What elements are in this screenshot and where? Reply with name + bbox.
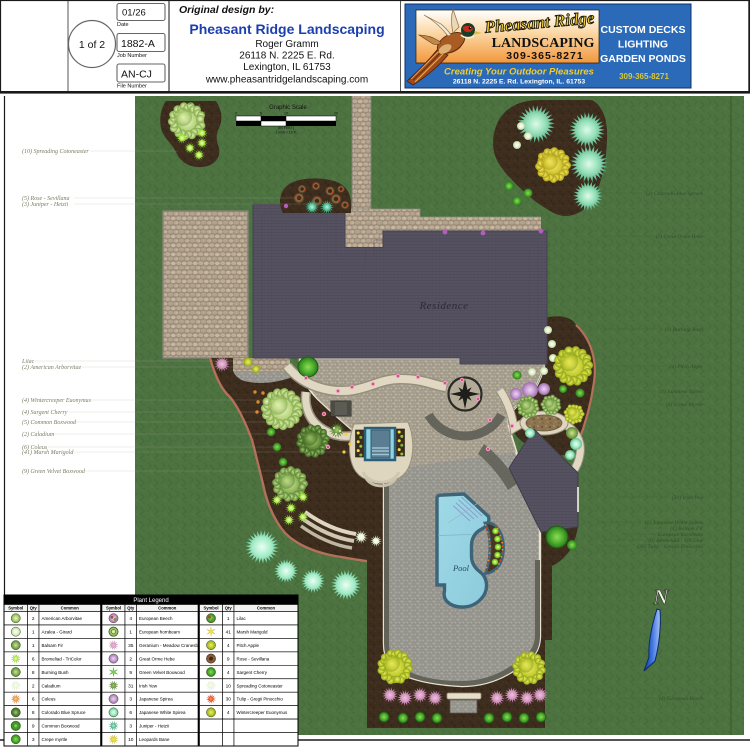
svg-text:Spreading Cotoneaster: Spreading Cotoneaster — [237, 683, 284, 688]
svg-text:30: 30 — [226, 697, 232, 703]
svg-text:4: 4 — [227, 710, 230, 716]
svg-text:Plant Legend: Plant Legend — [133, 598, 168, 604]
svg-text:2: 2 — [32, 616, 35, 622]
svg-text:1882-A: 1882-A — [121, 38, 155, 50]
svg-text:(2) Caladium: (2) Caladium — [22, 431, 55, 438]
svg-text:Great Orme Hebe: Great Orme Hebe — [139, 656, 175, 661]
svg-text:Green Velvet Boxwood: Green Velvet Boxwood — [139, 670, 185, 675]
svg-text:(6) Japanese White Spirea: (6) Japanese White Spirea — [645, 519, 703, 526]
svg-text:10: 10 — [226, 683, 232, 689]
svg-text:8: 8 — [32, 670, 35, 676]
svg-text:Symbol: Symbol — [8, 606, 23, 611]
svg-text:*: * — [189, 102, 192, 109]
svg-text:Common Boxwood: Common Boxwood — [42, 724, 81, 729]
svg-text:4: 4 — [227, 643, 230, 649]
svg-text:European Beech: European Beech — [139, 616, 173, 621]
svg-text:10: 10 — [128, 737, 134, 743]
svg-text:Crepe myrtle: Crepe myrtle — [42, 737, 68, 742]
svg-text:(5) Rose - Sevillana: (5) Rose - Sevillana — [22, 195, 69, 202]
svg-text:Symbol: Symbol — [203, 606, 218, 611]
svg-text:(4) Pitch Apple: (4) Pitch Apple — [670, 363, 704, 370]
svg-text:N: N — [652, 585, 669, 609]
svg-text:LANDSCAPING: LANDSCAPING — [492, 36, 595, 51]
svg-text:(31) Irish Yew: (31) Irish Yew — [672, 494, 703, 501]
svg-text:Tulip - Gregii Pinocchio: Tulip - Gregii Pinocchio — [237, 697, 284, 702]
svg-text:*: * — [198, 104, 201, 111]
svg-text:Sargent Cherry: Sargent Cherry — [237, 670, 268, 675]
svg-text:Qty: Qty — [30, 606, 38, 611]
svg-text:Common: Common — [158, 606, 177, 611]
svg-text:Job Number: Job Number — [117, 53, 147, 59]
svg-text:2: 2 — [129, 656, 132, 662]
svg-text:(9) Green Velvet Boxwood: (9) Green Velvet Boxwood — [22, 468, 86, 475]
svg-text:Creating Your Outdoor Pleasure: Creating Your Outdoor Pleasures — [444, 67, 594, 78]
svg-text:Leopards Bane: Leopards Bane — [139, 737, 170, 742]
svg-text:20: 20 — [334, 112, 338, 116]
svg-text:01/26: 01/26 — [122, 8, 146, 19]
svg-text:American Arborvitae: American Arborvitae — [42, 616, 83, 621]
svg-text:309-365-8271: 309-365-8271 — [506, 50, 583, 62]
svg-text:35: 35 — [128, 643, 134, 649]
svg-text:1: 1 — [129, 630, 132, 636]
svg-text:26118 N. 2225 E. Rd. Lexingt: 26118 N. 2225 E. Rd. Lexington, IL. 6175… — [453, 79, 585, 86]
svg-text:3: 3 — [129, 724, 132, 730]
svg-text:5: 5 — [260, 112, 262, 116]
svg-text:Burning Bush: Burning Bush — [42, 670, 70, 675]
svg-text:(3) Japanese Spirea: (3) Japanese Spirea — [659, 388, 703, 395]
svg-text:Balsam Fir: Balsam Fir — [42, 643, 64, 648]
svg-text:(41) Marsh Marigold: (41) Marsh Marigold — [22, 449, 74, 456]
svg-text:File Number: File Number — [117, 84, 147, 90]
svg-text:CUSTOM DECKS: CUSTOM DECKS — [601, 24, 686, 36]
svg-text:Common: Common — [257, 606, 276, 611]
svg-text:(30) Tulip - Greigii Pinocchio: (30) Tulip - Greigii Pinocchio — [637, 543, 703, 550]
svg-text:(4) Wintercreeper Euonymus: (4) Wintercreeper Euonymus — [22, 397, 92, 404]
svg-text:1: 1 — [227, 616, 230, 622]
svg-text:(5) Common Boxwood: (5) Common Boxwood — [22, 419, 77, 426]
svg-text:AN-CJ: AN-CJ — [121, 69, 152, 81]
svg-text:Qty: Qty — [127, 606, 135, 611]
svg-text:9: 9 — [32, 724, 35, 730]
svg-text:Coleus: Coleus — [42, 697, 57, 702]
svg-text:GARDEN PONDS: GARDEN PONDS — [600, 53, 686, 65]
svg-text:(4) European Beech: (4) European Beech — [659, 695, 703, 702]
svg-text:Symbol: Symbol — [106, 606, 121, 611]
svg-text:Irish Yew: Irish Yew — [139, 683, 158, 688]
svg-text:4: 4 — [129, 616, 132, 622]
svg-text:31: 31 — [128, 683, 134, 689]
svg-text:Rose - Sevillana: Rose - Sevillana — [237, 656, 270, 661]
svg-text:Geranium - Meadow Cranesbill: Geranium - Meadow Cranesbill — [139, 643, 201, 648]
svg-text:1 inch = 10 ft.: 1 inch = 10 ft. — [275, 131, 296, 135]
svg-text:Juniper - Hetzii: Juniper - Hetzii — [139, 724, 169, 729]
svg-text:9: 9 — [227, 656, 230, 662]
svg-text:Bromeliad - TriColor: Bromeliad - TriColor — [42, 656, 83, 661]
svg-text:9: 9 — [129, 670, 132, 676]
svg-text:26118 N. 2225 E. Rd.: 26118 N. 2225 E. Rd. — [239, 51, 334, 62]
svg-text:Common: Common — [61, 606, 80, 611]
svg-text:Pool: Pool — [452, 563, 470, 573]
svg-text:Japanese Spirea: Japanese Spirea — [139, 697, 173, 702]
svg-text:0: 0 — [235, 112, 237, 116]
svg-text:1: 1 — [32, 630, 35, 636]
svg-text:(2) Great Orme Hebe: (2) Great Orme Hebe — [656, 233, 704, 240]
svg-text:4: 4 — [227, 670, 230, 676]
svg-text:(3) Burning Bush: (3) Burning Bush — [665, 326, 703, 333]
svg-text:*: * — [203, 111, 206, 118]
svg-text:Residence: Residence — [418, 300, 468, 312]
svg-text:10: 10 — [284, 112, 288, 116]
svg-text:(IN FEET): (IN FEET) — [278, 126, 294, 130]
svg-text:Lilac: Lilac — [237, 616, 247, 621]
svg-text:Caladium: Caladium — [42, 683, 61, 688]
svg-text:LIGHTING: LIGHTING — [618, 39, 668, 51]
svg-text:Lexington, IL 61753: Lexington, IL 61753 — [243, 62, 331, 73]
svg-text:(1) Balsam Fir: (1) Balsam Fir — [670, 525, 704, 532]
svg-text:Japanese White Spirea: Japanese White Spirea — [139, 710, 186, 715]
svg-text:3: 3 — [129, 697, 132, 703]
svg-text:(6) Crepe Myrtle: (6) Crepe Myrtle — [666, 401, 704, 408]
svg-text:3: 3 — [32, 737, 35, 743]
svg-text:6: 6 — [32, 656, 35, 662]
svg-text:1 of 2: 1 of 2 — [79, 39, 105, 51]
svg-text:309-365-8271: 309-365-8271 — [619, 72, 669, 81]
svg-text:Original design by:: Original design by: — [179, 4, 274, 16]
svg-text:Date: Date — [117, 22, 129, 28]
svg-text:(3) Juniper - Hetzii: (3) Juniper - Hetzii — [22, 201, 68, 208]
svg-text:1: 1 — [32, 643, 35, 649]
svg-text:Wintercreeper Euonymus: Wintercreeper Euonymus — [237, 710, 289, 715]
svg-text:2: 2 — [32, 683, 35, 689]
svg-text:6: 6 — [32, 697, 35, 703]
svg-text:(6) Bromeliad - TriColor: (6) Bromeliad - TriColor — [648, 537, 704, 544]
svg-text:European hornbeam: European hornbeam — [139, 630, 180, 635]
svg-text:Pheasant Ridge Landscaping: Pheasant Ridge Landscaping — [189, 21, 384, 37]
svg-text:Marsh Marigold: Marsh Marigold — [237, 630, 269, 635]
svg-text:(2) American Arborvitae: (2) American Arborvitae — [22, 364, 81, 371]
svg-text:(2) Colorado Blue Spruce: (2) Colorado Blue Spruce — [646, 190, 704, 197]
svg-text:Qty: Qty — [225, 606, 233, 611]
svg-text:41: 41 — [226, 630, 232, 636]
svg-text:www.pheasantridgelandscaping.c: www.pheasantridgelandscaping.com — [205, 75, 368, 86]
svg-text:Colorado Blue Spruce: Colorado Blue Spruce — [42, 710, 87, 715]
svg-text:6: 6 — [129, 710, 132, 716]
svg-text:Roger Gramm: Roger Gramm — [255, 39, 318, 50]
svg-text:8: 8 — [32, 710, 35, 716]
svg-text:Azalea - Girard: Azalea - Girard — [42, 630, 73, 635]
svg-text:Graphic Scale: Graphic Scale — [269, 105, 307, 111]
svg-text:Pitch Apple: Pitch Apple — [237, 643, 260, 648]
svg-text:(4) Sargent Cherry: (4) Sargent Cherry — [22, 409, 68, 416]
svg-text:(10) Spreading Cotoneaster: (10) Spreading Cotoneaster — [22, 148, 89, 155]
